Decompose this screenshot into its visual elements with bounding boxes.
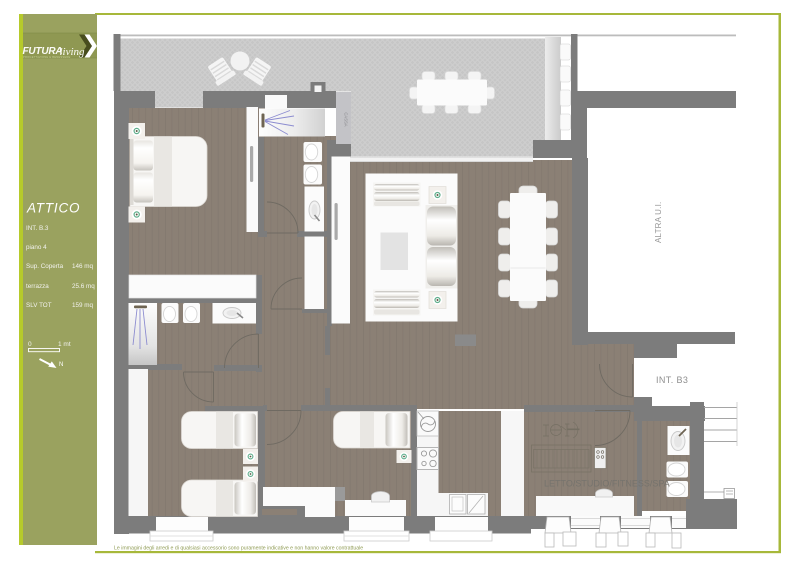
svg-text:INT. B3: INT. B3 xyxy=(656,375,688,385)
svg-text:terrazza: terrazza xyxy=(26,283,49,290)
svg-text:CASSA: CASSA xyxy=(344,112,349,126)
svg-text:ALTRA U.I.: ALTRA U.I. xyxy=(654,202,663,243)
svg-text:INT. B.3: INT. B.3 xyxy=(26,225,49,232)
svg-text:piano 4: piano 4 xyxy=(26,244,47,251)
svg-text:1 mt: 1 mt xyxy=(58,341,71,348)
svg-text:N: N xyxy=(59,362,63,368)
svg-text:LETTO/STUDIO/FITNESS/SPA: LETTO/STUDIO/FITNESS/SPA xyxy=(544,479,670,489)
svg-text:SLV TOT: SLV TOT xyxy=(26,302,52,309)
svg-text:Le immagini degli arredi e di: Le immagini degli arredi e di qualsiasi … xyxy=(114,546,363,552)
svg-text:159 mq: 159 mq xyxy=(72,302,94,309)
svg-text:PROGETTAZIONE E BENESSERE: PROGETTAZIONE E BENESSERE xyxy=(23,55,71,59)
svg-text:0: 0 xyxy=(28,341,32,348)
svg-text:ATTICO: ATTICO xyxy=(26,201,80,216)
svg-text:25.6 mq: 25.6 mq xyxy=(72,283,95,290)
svg-text:Sup. Coperta: Sup. Coperta xyxy=(26,263,64,270)
svg-text:146 mq: 146 mq xyxy=(72,263,94,270)
